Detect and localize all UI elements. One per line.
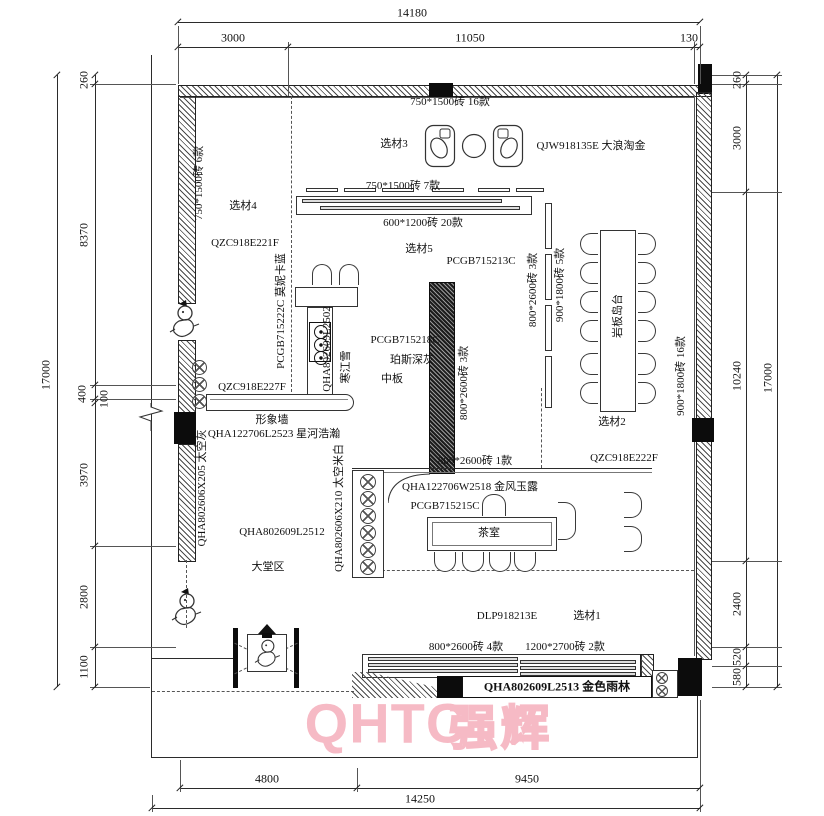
kitchen-tile-code: PCGB715222C 莫妮卡蓝 [275, 253, 287, 369]
kitchen-product-code: QHA802609L2502 [321, 306, 333, 392]
tile-strip [306, 188, 338, 192]
witness-line [712, 666, 782, 667]
zone4-label: 选材4 [229, 200, 257, 212]
dim-left-overall: 17000 [39, 360, 52, 390]
display-panel [545, 356, 552, 408]
zone3-product-code: QJW918135E 大浪淘金 [536, 140, 645, 152]
tea-counter-seat [360, 474, 376, 490]
tea-wall-line [352, 468, 652, 469]
witness-line [712, 75, 782, 76]
island-chair-left [580, 353, 598, 375]
witness-line [712, 192, 782, 193]
island-chair-right [638, 353, 656, 375]
island-label: 岩板岛台 [612, 294, 624, 338]
mascot-figure-icon [166, 300, 202, 342]
column-top-center [429, 83, 453, 97]
zone1-product-code: DLP918213E [477, 610, 538, 622]
stool [339, 264, 359, 285]
tea-product-code: QHA122706W2518 金风玉露 [402, 481, 538, 493]
door-post-left [233, 628, 238, 688]
right-wall-inner-line [694, 96, 695, 656]
tea-left-tile-code: QHA802606X210 太空米白 [333, 444, 345, 572]
dim-line [152, 808, 700, 809]
tile-spec-label: 900*1800砖 5款 [554, 248, 566, 322]
plant-circle [192, 377, 207, 392]
witness-line [178, 26, 179, 84]
witness-line [90, 84, 176, 85]
tile-spec-label: 750*1500砖 7款 [366, 180, 440, 192]
left-wall-tile-code: QHA802606X205 太空灰 [196, 429, 208, 546]
witness-line [712, 84, 782, 85]
feature-wall-inner-line [210, 399, 348, 400]
rack-shelf [368, 669, 518, 673]
zone2-label: 选材2 [598, 416, 626, 428]
tile-spec-label: 600*1200砖 20款 [383, 217, 463, 229]
lobby-label: 大堂区 [252, 561, 285, 573]
feature-wall-label: 形象墙 [256, 414, 289, 426]
dim-left-seg: 3970 [77, 463, 90, 487]
column-left [174, 412, 196, 444]
sink-bowl [656, 685, 668, 697]
bottom-border-line [151, 757, 698, 758]
tea-counter-seat [360, 542, 376, 558]
witness-line [90, 546, 176, 547]
right-border-line [697, 696, 698, 757]
island-zone-divider [541, 388, 542, 468]
tile-spec-label: 1200*2700砖 2款 [525, 641, 605, 653]
side-chair [624, 492, 642, 518]
dim-line [180, 788, 700, 789]
wall-product-code: QZC918E227F [218, 381, 286, 393]
zone4-product-code: QZC918E221F [211, 237, 279, 249]
tile-spec-label: 750*1500砖 6款 [193, 146, 205, 220]
rack-shelf [520, 660, 636, 664]
dim-left-seg: 100 [97, 390, 110, 408]
tile-strip [516, 188, 544, 192]
watermark-cjk: 强辉 [449, 688, 553, 758]
zone1-label: 选材1 [573, 610, 601, 622]
tea-product-code2: PCGB715215C [410, 500, 479, 512]
kitchen-tile-name: 寒江雪 [340, 351, 352, 384]
dim-top-seg: 11050 [455, 31, 485, 44]
tea-chair-bottom [514, 552, 536, 572]
dim-right-seg: 3000 [730, 126, 743, 150]
column-right-mid [692, 418, 714, 442]
island-chair-right [638, 233, 656, 255]
mascot-figure-icon [250, 635, 284, 671]
feature-wall-code: QHA122706L2523 星河浩瀚 [208, 428, 340, 440]
tile-spec-label: 800*2600砖 3款 [527, 253, 539, 327]
watermark-logo: QHTC [305, 691, 468, 756]
tile-spec-label: 800*2600砖 3款 [458, 346, 470, 420]
plant-circle [192, 394, 207, 409]
zone5-label: 选材5 [405, 243, 433, 255]
storefront-line-left [152, 658, 233, 659]
kitchen-grey-code: PCGB715218C [370, 334, 439, 346]
dim-right-overall: 17000 [761, 363, 774, 393]
tea-counter-seat [360, 508, 376, 524]
display-panel [545, 203, 552, 249]
dim-left-seg: 1100 [77, 655, 90, 679]
dim-left-seg: 260 [77, 71, 90, 89]
tea-chair-bottom [434, 552, 456, 572]
island-chair-left [580, 262, 598, 284]
tea-counter-seat [360, 559, 376, 575]
witness-line [712, 647, 782, 648]
dim-line [178, 22, 700, 23]
rack-shelf [302, 199, 502, 203]
dim-line [777, 75, 778, 687]
tea-chair-end [558, 502, 576, 540]
dim-right-seg: 10240 [730, 361, 743, 391]
tea-chair-top [482, 494, 506, 516]
dim-line [746, 75, 747, 687]
witness-line [700, 700, 701, 812]
zone-divider-left [291, 96, 292, 392]
island-chair-right [638, 320, 656, 342]
dim-top-overall: 14180 [397, 6, 427, 19]
witness-line [712, 687, 782, 688]
dim-right-seg: 260 [730, 71, 743, 89]
witness-line [694, 42, 695, 84]
witness-line [152, 795, 153, 812]
floor-plan-canvas: 14180 3000 11050 130 4800 9450 14250 170… [0, 0, 824, 816]
kitchen-board-label: 中板 [381, 373, 403, 385]
dim-right-seg: 580 [730, 668, 743, 686]
witness-line [90, 687, 150, 688]
witness-line [700, 26, 701, 84]
stool [312, 264, 332, 285]
island-chair-left [580, 320, 598, 342]
rack-shelf [368, 657, 518, 661]
tile-spec-label: 800*2600砖 4款 [429, 641, 503, 653]
tea-counter-seat [360, 525, 376, 541]
rack-shelf [520, 666, 636, 670]
side-chair [624, 526, 642, 552]
kitchen-counter-top [295, 287, 358, 307]
dim-bottom-seg: 9450 [515, 772, 539, 785]
column-right-bottom [678, 658, 702, 696]
feature-wall-bar [206, 394, 354, 411]
witness-line [90, 647, 176, 648]
display-panel [545, 254, 552, 300]
mascot-figure-icon [168, 588, 204, 630]
tile-spec-label: 900*1800砖 16款 [675, 336, 687, 416]
dim-top-seg: 130 [680, 31, 698, 44]
island-chair-right [638, 291, 656, 313]
right-wall [696, 92, 712, 660]
island-chair-right [638, 382, 656, 404]
tea-room-label: 茶室 [478, 527, 500, 539]
sink-bowl [656, 672, 668, 684]
lobby-product-code: QHA802609L2512 [239, 526, 325, 538]
dim-left-seg: 2800 [77, 585, 90, 609]
tea-counter-seat [360, 491, 376, 507]
witness-line [90, 385, 176, 386]
tile-strip [478, 188, 510, 192]
dim-line [95, 75, 96, 687]
door-post-right [294, 628, 299, 688]
zone3-label: 选材3 [380, 138, 408, 150]
rack-shelf [368, 663, 518, 667]
tea-chair-bottom [489, 552, 511, 572]
zone2-product-code: QZC918E222F [590, 452, 658, 464]
display-panel [545, 305, 552, 351]
rack-shelf [320, 206, 520, 210]
dim-left-seg: 400 [75, 385, 88, 403]
tile-spec-label: 800*2600砖 1款 [438, 455, 512, 467]
tile-spec-label: 750*1500砖 16款 [410, 96, 490, 108]
plant-circle [192, 360, 207, 375]
tea-chair-bottom [462, 552, 484, 572]
witness-line [712, 561, 782, 562]
dim-line [178, 47, 700, 48]
break-symbol [132, 403, 172, 431]
dim-bottom-overall: 14250 [405, 792, 435, 805]
witness-line [288, 42, 289, 96]
dim-top-seg: 3000 [221, 31, 245, 44]
dim-right-seg: 2400 [730, 592, 743, 616]
dim-line [57, 75, 58, 687]
island-chair-left [580, 382, 598, 404]
kitchen-grey-name: 珀斯深灰 [390, 354, 434, 366]
island-chair-left [580, 233, 598, 255]
washroom-fixtures [424, 124, 524, 168]
dim-bottom-seg: 4800 [255, 772, 279, 785]
center-partition-wall [429, 282, 455, 474]
zone5-product-code: PCGB715213C [446, 255, 515, 267]
island-chair-right [638, 262, 656, 284]
dim-left-seg: 8370 [77, 223, 90, 247]
island-chair-left [580, 291, 598, 313]
dim-right-seg: 520 [730, 648, 743, 666]
left-wall-lower [178, 444, 196, 562]
